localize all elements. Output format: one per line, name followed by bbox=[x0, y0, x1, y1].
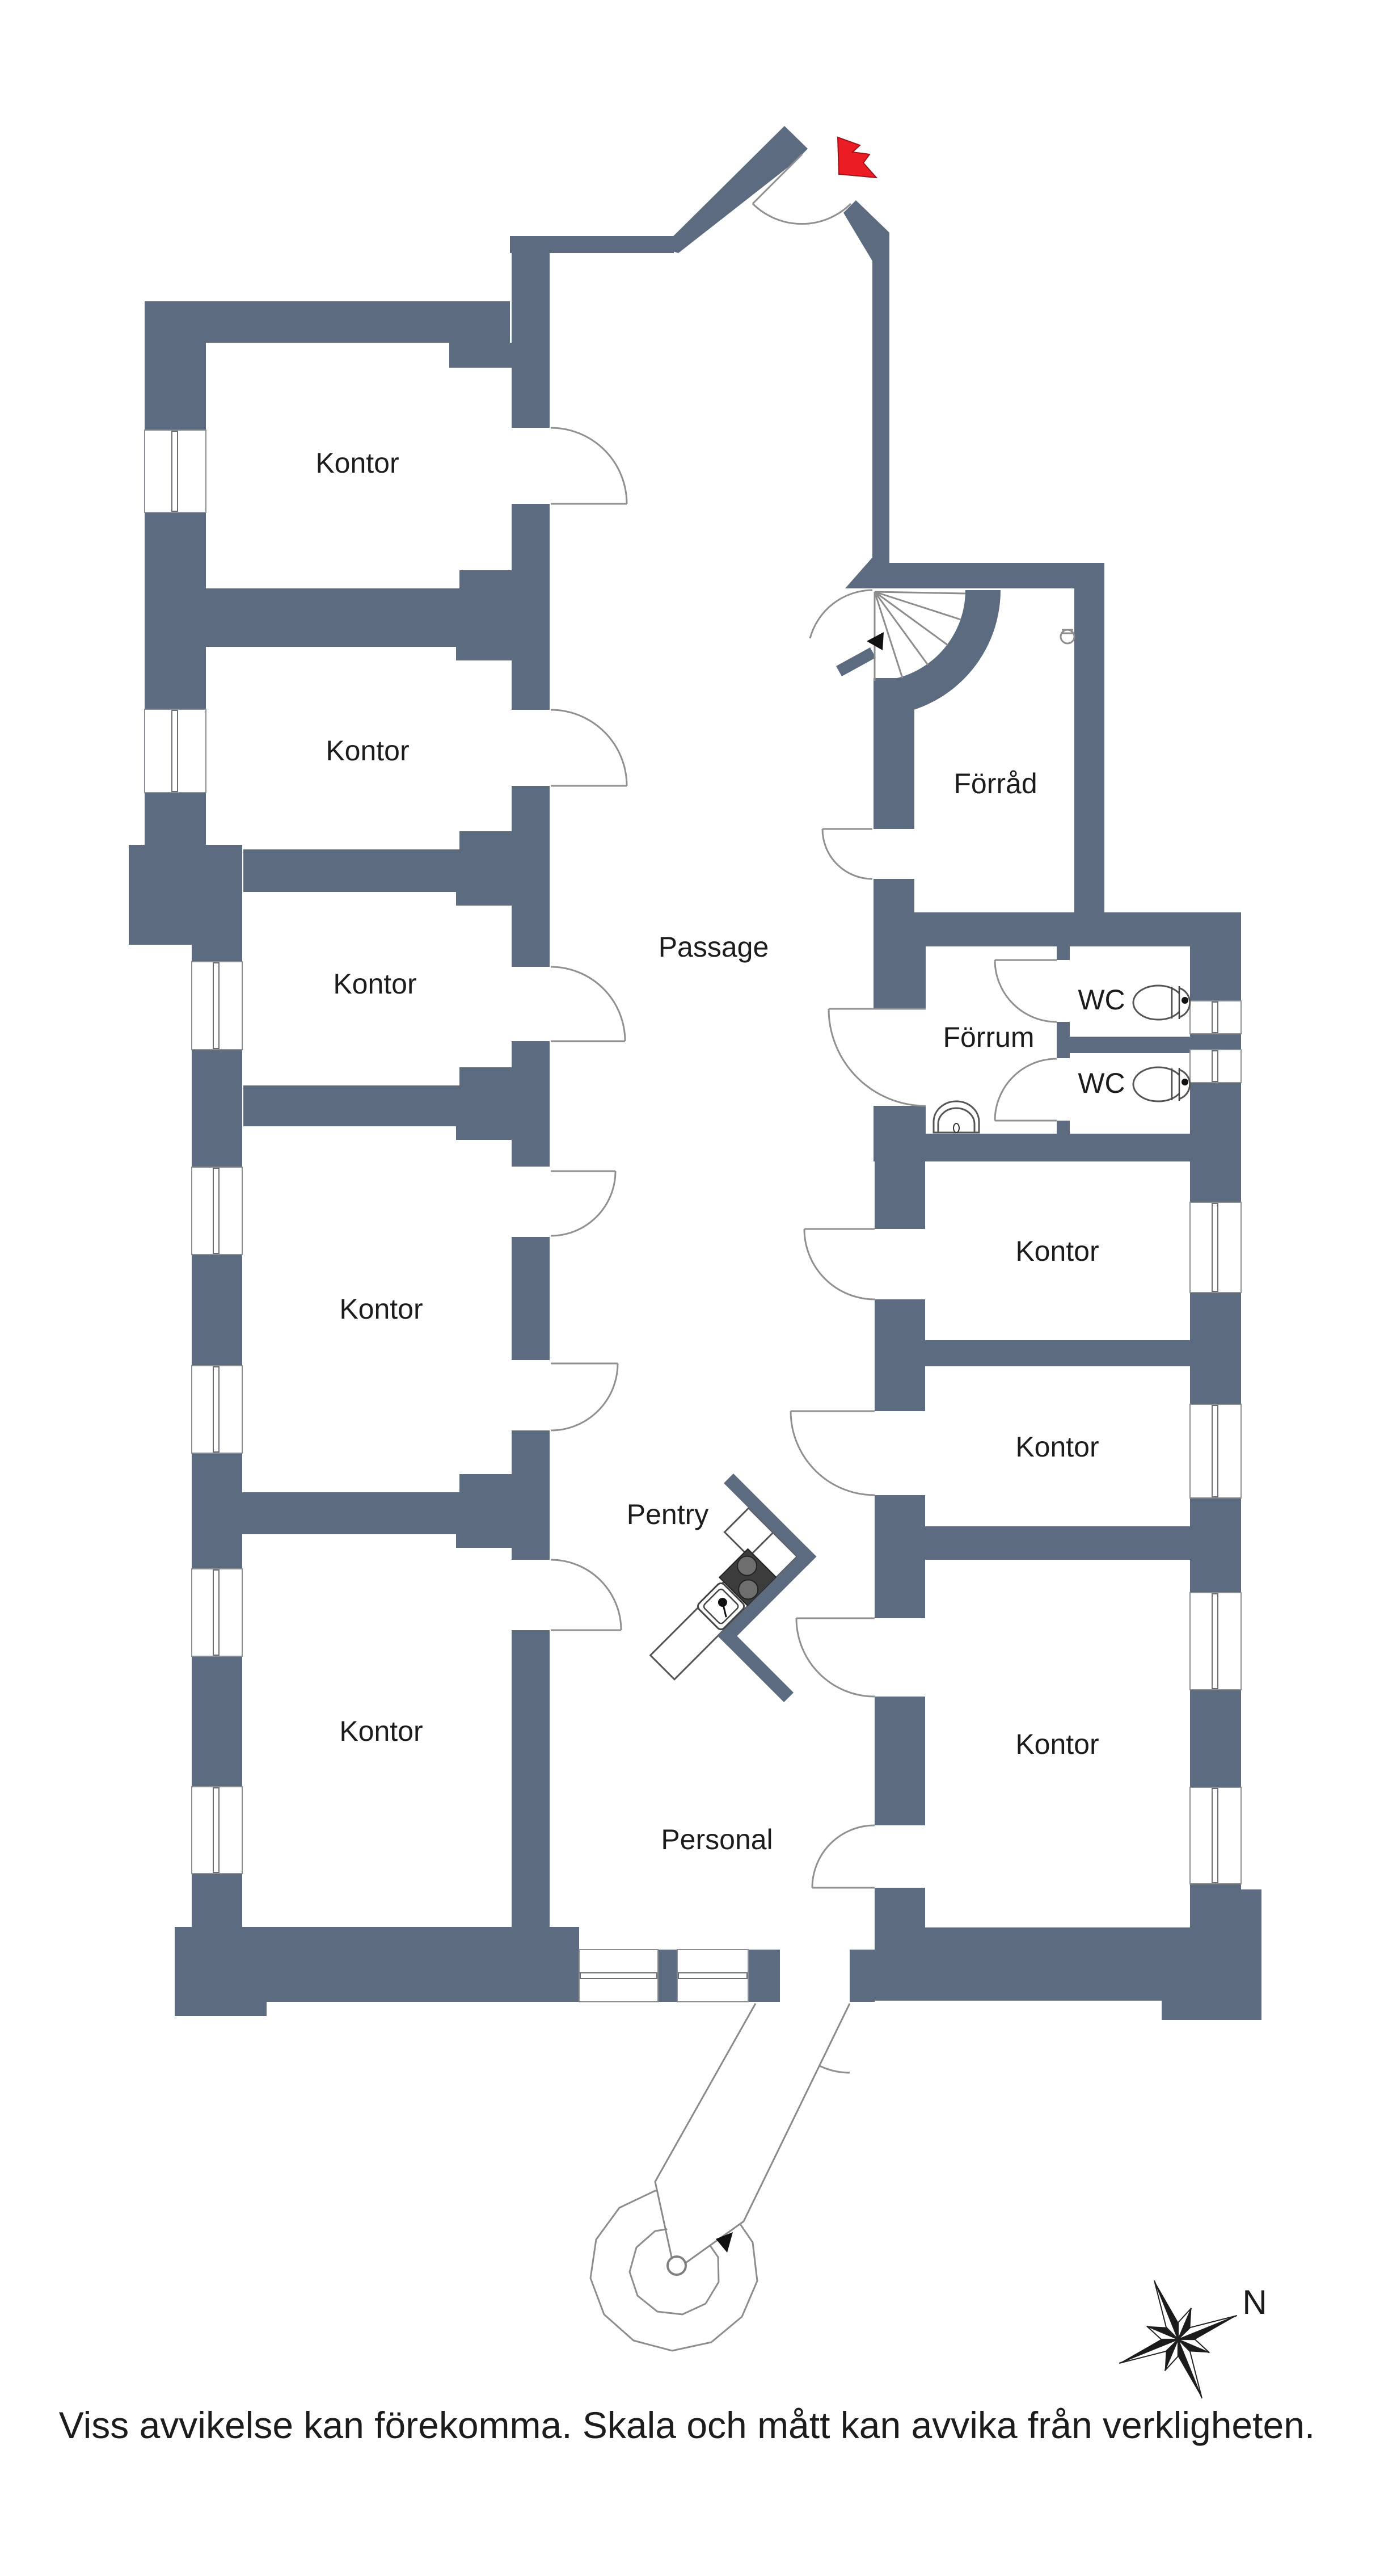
svg-text:WC: WC bbox=[1078, 984, 1125, 1016]
svg-text:Personal: Personal bbox=[661, 1824, 773, 1855]
svg-text:Kontor: Kontor bbox=[339, 1715, 423, 1747]
svg-text:Kontor: Kontor bbox=[1015, 1728, 1099, 1760]
svg-text:Kontor: Kontor bbox=[339, 1293, 423, 1325]
svg-text:Kontor: Kontor bbox=[315, 447, 399, 479]
svg-text:Kontor: Kontor bbox=[1015, 1235, 1099, 1267]
svg-text:Förrum: Förrum bbox=[943, 1021, 1034, 1053]
svg-text:Kontor: Kontor bbox=[1015, 1431, 1099, 1463]
svg-text:N: N bbox=[1242, 2283, 1267, 2321]
svg-text:Viss avvikelse kan förekomma.: Viss avvikelse kan förekomma. Skala och … bbox=[59, 2404, 1315, 2446]
svg-text:Passage: Passage bbox=[659, 931, 769, 963]
svg-text:Pentry: Pentry bbox=[627, 1499, 709, 1530]
svg-text:Kontor: Kontor bbox=[326, 735, 409, 767]
svg-text:Förråd: Förråd bbox=[953, 768, 1037, 799]
svg-text:Kontor: Kontor bbox=[333, 968, 416, 1000]
svg-text:WC: WC bbox=[1078, 1067, 1125, 1099]
